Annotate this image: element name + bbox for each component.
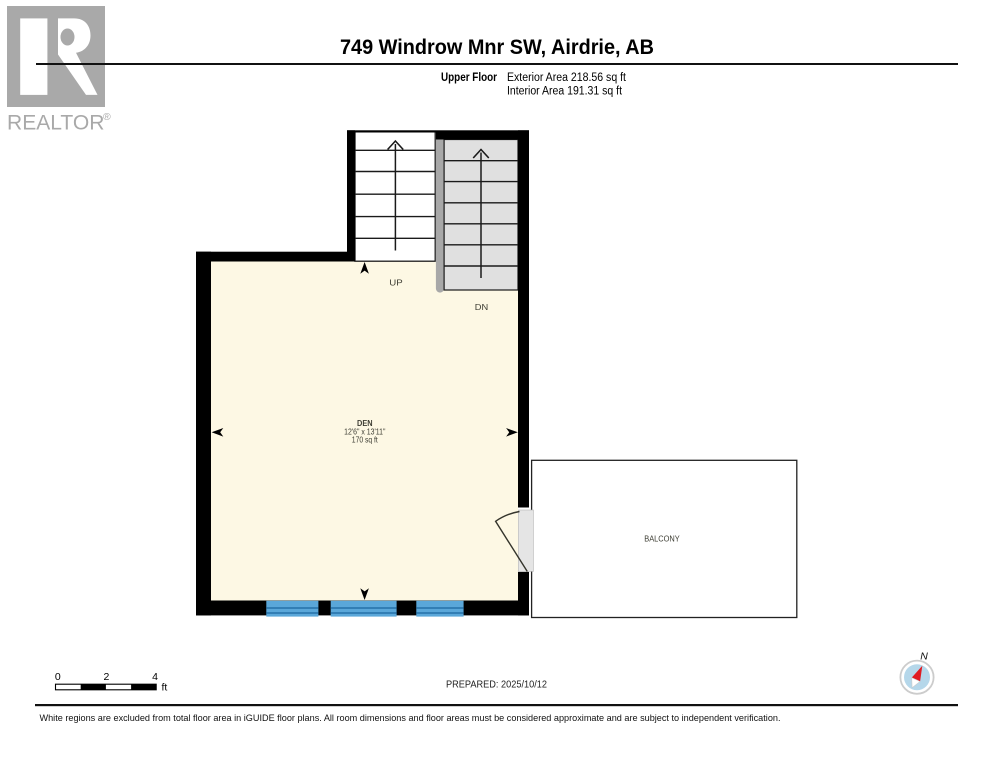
svg-text:4: 4	[152, 671, 158, 683]
svg-text:N: N	[920, 651, 928, 663]
svg-text:PREPARED: 2025/10/12: PREPARED: 2025/10/12	[446, 678, 547, 690]
svg-text:Exterior Area 218.56 sq ft: Exterior Area 218.56 sq ft	[507, 72, 627, 84]
svg-text:0: 0	[55, 671, 61, 683]
svg-text:DN: DN	[475, 302, 488, 312]
svg-text:749 Windrow Mnr SW, Airdrie, A: 749 Windrow Mnr SW, Airdrie, AB	[340, 36, 654, 59]
svg-text:REALTOR: REALTOR	[7, 111, 105, 135]
svg-text:170 sq ft: 170 sq ft	[352, 435, 379, 444]
svg-text:White regions are excluded fro: White regions are excluded from total fl…	[40, 713, 781, 723]
svg-text:2: 2	[103, 671, 109, 683]
svg-text:Interior Area 191.31 sq ft: Interior Area 191.31 sq ft	[507, 86, 623, 98]
svg-text:UP: UP	[389, 278, 403, 288]
svg-text:Upper Floor: Upper Floor	[441, 72, 497, 84]
svg-text:®: ®	[103, 111, 111, 123]
svg-text:ft: ft	[162, 682, 168, 694]
svg-text:BALCONY: BALCONY	[644, 535, 680, 544]
